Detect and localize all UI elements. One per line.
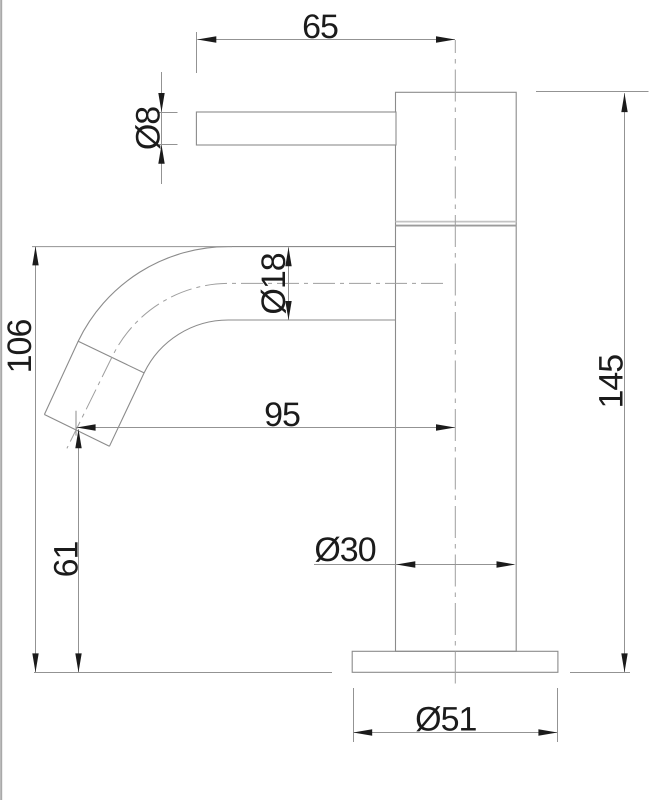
svg-text:61: 61: [48, 542, 86, 578]
svg-text:Ø18: Ø18: [255, 253, 293, 314]
svg-text:Ø51: Ø51: [415, 701, 476, 739]
svg-text:Ø8: Ø8: [130, 107, 168, 150]
svg-text:Ø30: Ø30: [314, 531, 375, 569]
svg-text:65: 65: [302, 8, 338, 46]
svg-text:145: 145: [593, 355, 631, 409]
svg-text:95: 95: [264, 396, 300, 434]
svg-text:106: 106: [1, 320, 39, 374]
